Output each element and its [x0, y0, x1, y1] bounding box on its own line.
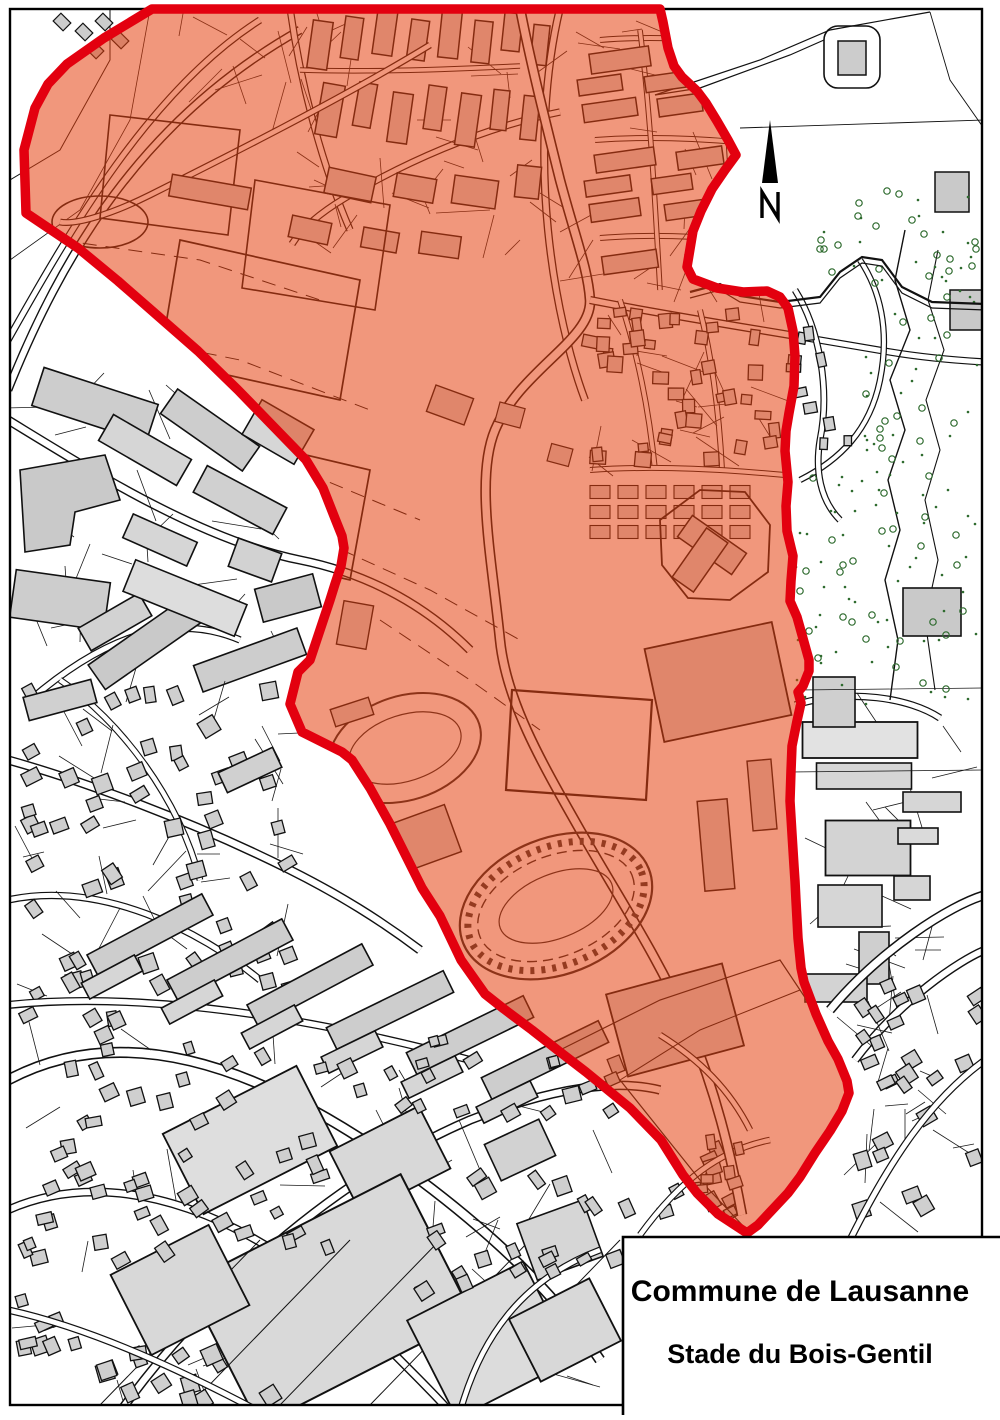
svg-text:Stade du Bois-Gentil: Stade du Bois-Gentil [667, 1339, 933, 1369]
svg-text:Commune de Lausanne: Commune de Lausanne [631, 1275, 969, 1308]
